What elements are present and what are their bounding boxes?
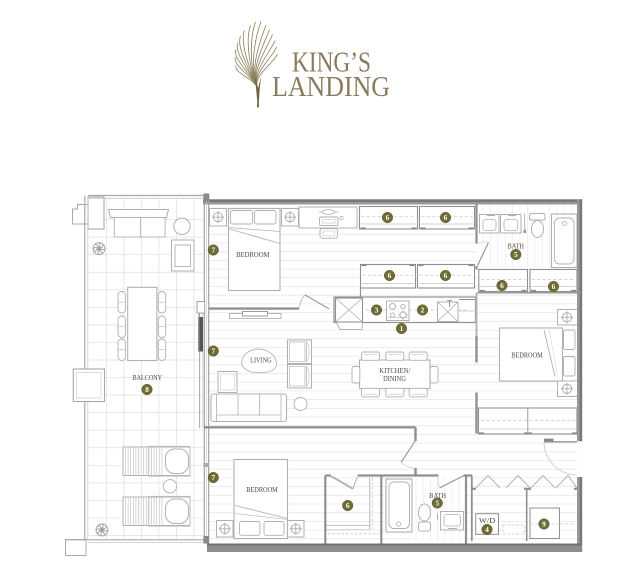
svg-text:6: 6 bbox=[444, 213, 448, 222]
svg-text:BATH: BATH bbox=[429, 493, 446, 500]
svg-text:LANDING: LANDING bbox=[272, 72, 390, 103]
svg-text:BEDROOM: BEDROOM bbox=[236, 250, 270, 259]
svg-text:9: 9 bbox=[542, 520, 546, 529]
svg-text:1: 1 bbox=[400, 324, 404, 333]
svg-text:7: 7 bbox=[211, 347, 215, 356]
svg-text:BEDROOM: BEDROOM bbox=[246, 485, 278, 494]
svg-text:7: 7 bbox=[211, 473, 215, 482]
svg-text:6: 6 bbox=[552, 282, 556, 291]
svg-text:4: 4 bbox=[485, 525, 489, 534]
svg-text:W/D: W/D bbox=[479, 517, 495, 525]
svg-text:2: 2 bbox=[421, 306, 425, 315]
svg-text:BATH: BATH bbox=[508, 243, 524, 250]
svg-text:6: 6 bbox=[386, 213, 390, 222]
svg-text:LIVING: LIVING bbox=[250, 357, 272, 364]
svg-text:6: 6 bbox=[500, 281, 504, 290]
svg-text:3: 3 bbox=[375, 306, 379, 315]
svg-text:6: 6 bbox=[388, 271, 392, 280]
svg-text:5: 5 bbox=[514, 250, 518, 259]
svg-text:8: 8 bbox=[145, 385, 149, 394]
svg-text:6: 6 bbox=[346, 501, 350, 510]
svg-text:6: 6 bbox=[444, 271, 448, 280]
svg-text:DINING: DINING bbox=[383, 374, 406, 383]
svg-text:BEDROOM: BEDROOM bbox=[511, 351, 543, 360]
svg-text:7: 7 bbox=[211, 246, 215, 255]
svg-text:BALCONY: BALCONY bbox=[133, 373, 163, 382]
